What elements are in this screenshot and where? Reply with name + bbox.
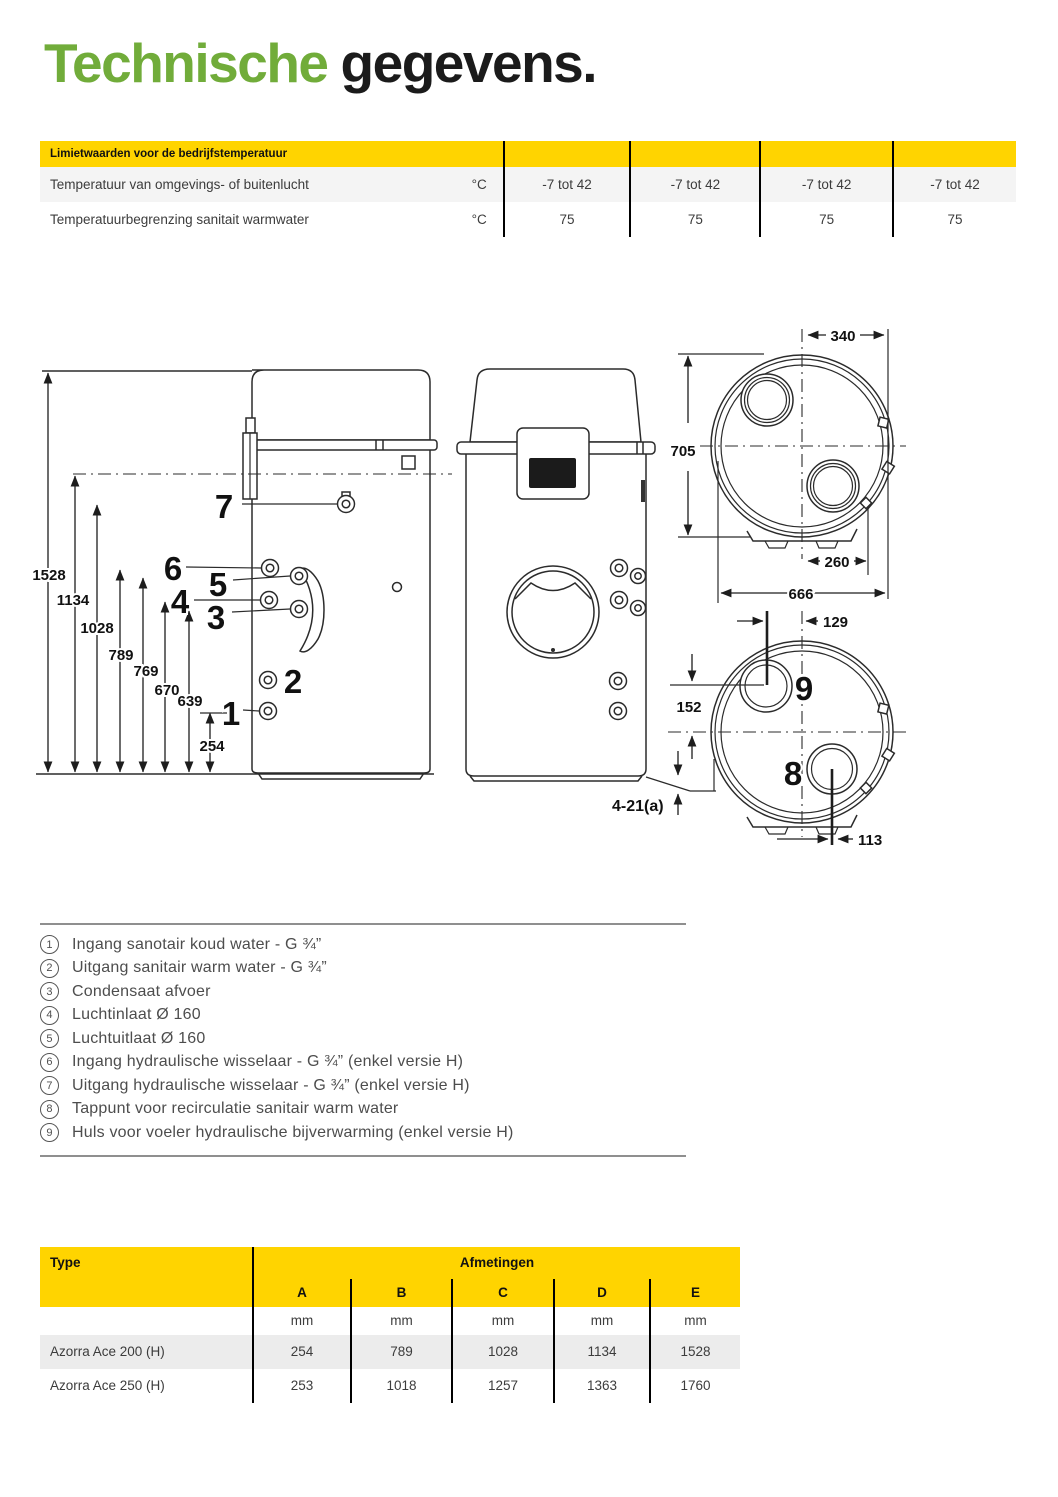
empty-cell [40,1307,252,1335]
dimension-label: 340 [830,328,855,345]
legend-text: Tappunt voor recirculatie sanitair warm … [72,1100,398,1118]
limits-table: Limietwaarden voor de bedrijfstemperatuu… [40,141,1016,237]
technical-drawing-section: 1528 1134 1028 789 769 670 639 254 7 6 5… [0,237,1058,892]
callout-number: 5 [209,566,227,603]
dimension-label: 1134 [57,592,90,609]
dimension-label: 260 [824,554,849,571]
technical-drawing: 1528 1134 1028 789 769 670 639 254 7 6 5… [0,237,1058,892]
value-cell: 1257 [451,1369,553,1403]
callout-number: 3 [207,599,225,636]
callout-number: 2 [284,663,302,700]
dimension-label: 670 [154,682,179,699]
legend-number-badge: 9 [40,1123,59,1142]
dimension-label: 1528 [32,567,65,584]
legend-number-badge: 8 [40,1100,59,1119]
value-cell: 1528 [649,1335,740,1369]
legend-text: Ingang hydraulische wisselaar - G ¾” (en… [72,1053,463,1071]
unit-cell: mm [350,1307,451,1335]
callout-number: 4 [171,583,190,620]
list-item: 7Uitgang hydraulische wisselaar - G ¾” (… [40,1074,686,1098]
limits-cell: -7 tot 42 [759,167,892,202]
limits-cell: 75 [503,202,630,237]
limits-header-cell [629,141,759,167]
legend-text: Uitgang sanitair warm water - G ¾” [72,959,327,977]
side-view: 1528 1134 1028 789 769 670 639 254 7 6 5… [32,370,452,779]
column-header: D [553,1279,649,1307]
limits-header-cell [456,141,503,167]
legend-number-badge: 5 [40,1029,59,1048]
value-cell: 1760 [649,1369,740,1403]
dimension-label: 705 [670,443,695,460]
limits-cell: -7 tot 42 [892,167,1016,202]
dimension-label: 666 [788,586,813,603]
bottom-view: 129 152 113 9 8 [668,611,906,849]
type-column-header: Type [40,1247,252,1307]
column-header: B [350,1279,451,1307]
limits-row-label: Temperatuurbegrenzing sanitait warmwater [40,202,456,237]
column-header: A [252,1279,350,1307]
value-cell: 1018 [350,1369,451,1403]
legend-text: Uitgang hydraulische wisselaar - G ¾” (e… [72,1077,470,1095]
limits-header-cell [892,141,1016,167]
model-name: Azorra Ace 250 (H) [40,1369,252,1403]
limits-cell: -7 tot 42 [503,167,630,202]
dimensions-table: Type Afmetingen A B C D E mm mm mm mm mm… [40,1247,740,1403]
callout-number: 6 [164,550,182,587]
side-dimension-lines [48,373,227,772]
title-rest: gegevens. [341,32,597,94]
limits-cell: 75 [629,202,759,237]
legend-number-badge: 6 [40,1053,59,1072]
page: Technischegegevens. Limietwaarden voor d… [0,36,1058,1497]
callout-number: 7 [215,488,233,525]
limits-cell: 75 [892,202,1016,237]
list-item: 4Luchtinlaat Ø 160 [40,1004,686,1028]
dimension-label: 129 [823,614,848,631]
note-label: 4-21(a) [612,798,664,815]
callout-number: 9 [795,670,813,707]
dimension-label: 1028 [80,620,113,637]
list-item: 8Tappunt voor recirculatie sanitair warm… [40,1098,686,1122]
group-header: Afmetingen [252,1247,740,1279]
unit-cell: mm [451,1307,553,1335]
legend-number-badge: 7 [40,1076,59,1095]
unit-cell: mm [553,1307,649,1335]
value-cell: 254 [252,1335,350,1369]
limits-cell: -7 tot 42 [629,167,759,202]
value-cell: 1134 [553,1335,649,1369]
limits-cell: 75 [759,202,892,237]
front-view: 4-21(a) [457,369,716,815]
dimension-label: 789 [108,647,133,664]
legend-text: Luchtuitlaat Ø 160 [72,1030,205,1048]
column-header: C [451,1279,553,1307]
model-name: Azorra Ace 200 (H) [40,1335,252,1369]
value-cell: 789 [350,1335,451,1369]
value-cell: 1028 [451,1335,553,1369]
legend-number-badge: 2 [40,959,59,978]
limits-row-unit: °C [456,202,503,237]
list-item: 6Ingang hydraulische wisselaar - G ¾” (e… [40,1051,686,1075]
limits-row-label: Temperatuur van omgevings- of buitenluch… [40,167,456,202]
limits-row-unit: °C [456,167,503,202]
page-title: Technischegegevens. [44,36,1058,91]
legend-text: Ingang sanotair koud water - G ¾” [72,936,321,954]
legend-text: Huls voor voeler hydraulische bijverwarm… [72,1124,514,1142]
dimension-label: 254 [199,738,225,755]
unit-cell: mm [649,1307,740,1335]
list-item: 1Ingang sanotair koud water - G ¾” [40,933,686,957]
unit-cell: mm [252,1307,350,1335]
top-view: 340 705 260 666 [670,328,906,603]
list-item: 3Condensaat afvoer [40,980,686,1004]
dimension-label: 769 [133,663,158,680]
legend: 1Ingang sanotair koud water - G ¾” 2Uitg… [40,923,686,1157]
legend-text: Condensaat afvoer [72,983,211,1001]
title-accent: Technische [44,32,328,94]
limits-header-cell [759,141,892,167]
legend-number-badge: 1 [40,935,59,954]
legend-number-badge: 4 [40,1006,59,1025]
value-cell: 1363 [553,1369,649,1403]
dimension-label: 639 [177,693,202,710]
list-item: 2Uitgang sanitair warm water - G ¾” [40,957,686,981]
dimension-label: 113 [858,832,882,849]
limits-header-cell [503,141,630,167]
callout-number: 1 [222,695,240,732]
callout-number: 8 [784,755,802,792]
legend-text: Luchtinlaat Ø 160 [72,1006,201,1024]
list-item: 9Huls voor voeler hydraulische bijverwar… [40,1121,686,1145]
list-item: 5Luchtuitlaat Ø 160 [40,1027,686,1051]
column-header: E [649,1279,740,1307]
limits-table-header: Limietwaarden voor de bedrijfstemperatuu… [40,141,456,167]
dimension-label: 152 [676,699,701,716]
value-cell: 253 [252,1369,350,1403]
legend-number-badge: 3 [40,982,59,1001]
